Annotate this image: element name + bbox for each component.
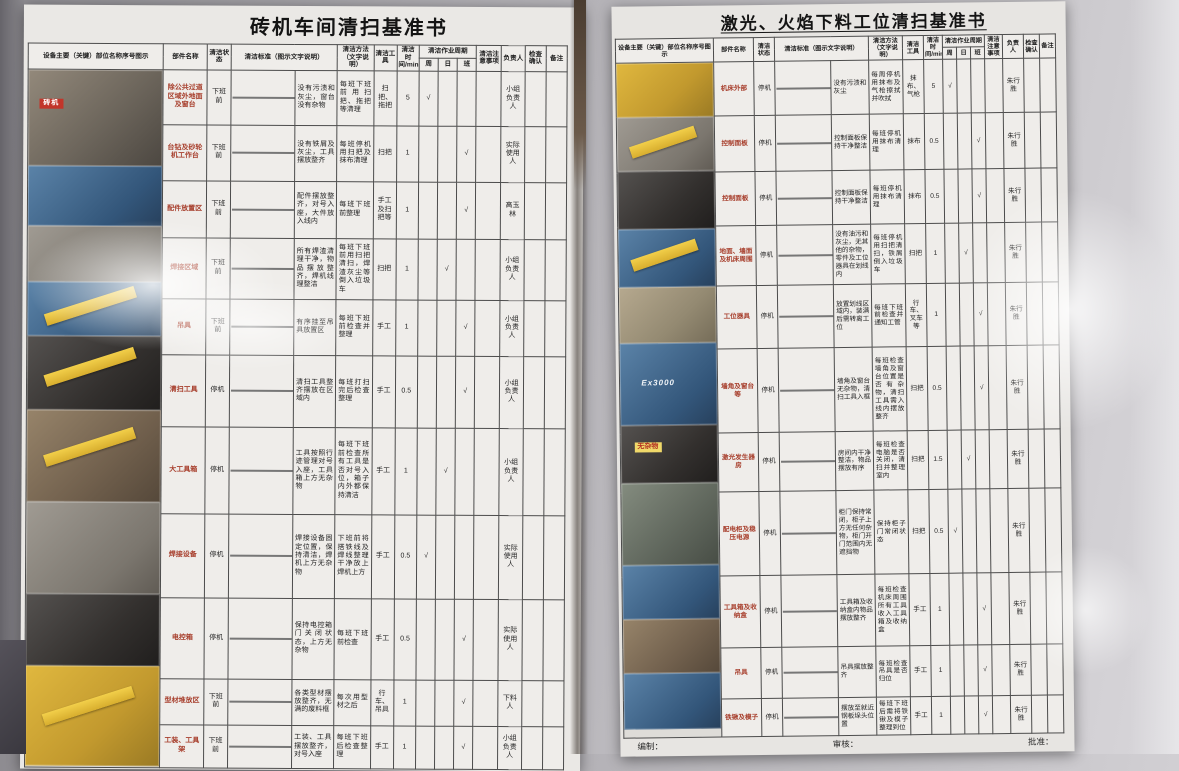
cleaning-state-cell: 停机 <box>205 427 229 514</box>
check-confirm-cell <box>522 599 544 680</box>
header-tool: 清洁工具 <box>902 35 923 60</box>
standard-text-cell: 所有焊渣清理干净，物品摆放整齐，焊机线理整洁 <box>294 238 337 299</box>
header-period-shift: 班 <box>457 58 476 71</box>
period-day-cell <box>960 346 975 430</box>
period-week-cell <box>417 428 437 515</box>
remark-cell <box>543 600 565 681</box>
photographed-desk-scene: 砖机车间清扫基准书 设备主要（关键）部位名称序号图示 部件名称 清洁状态 清洁标… <box>0 0 1179 754</box>
check-confirm-cell <box>522 428 544 515</box>
tool-cell: 抹布 <box>903 114 925 170</box>
note-cell <box>989 430 1008 489</box>
standard-text-cell: 吊具摆放整齐 <box>838 646 877 697</box>
equipment-photo <box>617 171 715 230</box>
note-cell <box>987 223 1006 283</box>
tool-cell: 手工 <box>371 599 395 680</box>
period-day-cell <box>435 515 455 599</box>
period-day-cell <box>437 300 456 356</box>
period-shift-cell: √ <box>978 696 992 734</box>
cleaning-state-cell: 停机 <box>760 576 782 648</box>
remark-cell <box>1045 488 1062 572</box>
responsible-person-cell: 实际使用人 <box>498 599 522 680</box>
cleaning-state-cell: 停机 <box>206 355 230 427</box>
responsible-person-cell: 朱行胜 <box>1005 223 1027 283</box>
cleaning-state-cell: 停机 <box>204 598 228 679</box>
responsible-person-cell: 小组负责人 <box>499 428 523 515</box>
standard-text-cell: 没有铁屑及灰尘，工具摆放整齐 <box>295 125 338 181</box>
responsible-person-cell: 高玉林 <box>501 182 524 239</box>
time-cell: 5 <box>397 71 419 126</box>
standard-photo-cell <box>778 348 835 433</box>
equipment-photo <box>27 335 161 410</box>
remark-cell <box>546 72 567 127</box>
period-week-cell: √ <box>943 59 958 113</box>
time-cell: 0.5 <box>924 114 944 170</box>
note-cell <box>475 239 500 300</box>
standard-text-cell: 工具箱及收纳盒内物品摆放整齐 <box>837 575 876 647</box>
header-state: 清洁状态 <box>753 37 774 62</box>
responsible-person-cell: 朱行胜 <box>1009 573 1031 645</box>
part-name-cell: 机床外部 <box>714 62 755 116</box>
part-name-cell: 控制面板 <box>715 172 756 226</box>
period-week-cell <box>417 356 437 428</box>
note-cell <box>475 300 500 356</box>
period-week-cell <box>949 573 964 645</box>
period-shift-cell <box>975 430 990 489</box>
header-photo-col: 设备主要（关键）部位名称序号图示 <box>28 43 163 69</box>
callout-ribbon <box>44 347 137 387</box>
header-remark: 备注 <box>1039 34 1055 59</box>
standard-text-cell: 控制面板保持干净整洁 <box>832 171 871 225</box>
reviewed-by-label: 审核： <box>833 738 859 750</box>
equipment-photo <box>624 673 722 730</box>
period-week-cell <box>416 599 436 680</box>
time-cell: 1 <box>393 680 415 726</box>
method-cell: 每班检查电脑是否关闭，清扫并整理室内 <box>873 431 908 490</box>
callout-ribbon <box>629 125 697 158</box>
cleaning-standard-table-right: 设备主要（关键）部位名称序号图示 部件名称 清洁状态 清洁标准（图示文字说明） … <box>615 33 1065 739</box>
tool-cell: 扫把 <box>908 490 930 574</box>
check-confirm-cell <box>1024 112 1041 168</box>
standard-photo <box>229 701 292 703</box>
standard-photo-cell <box>229 355 294 427</box>
period-day-cell <box>437 182 456 239</box>
standard-photo <box>779 315 834 318</box>
standard-photo <box>230 555 293 557</box>
standard-text-cell: 控制面板保持干净整洁 <box>831 115 870 171</box>
responsible-person-cell: 朱行胜 <box>1003 59 1025 113</box>
responsible-person-cell: 朱行胜 <box>1003 113 1025 169</box>
note-cell <box>987 283 1006 346</box>
period-week-cell <box>943 113 958 169</box>
note-cell <box>985 113 1004 169</box>
standard-photo-cell <box>780 491 837 576</box>
period-shift-cell <box>457 71 476 126</box>
standard-photo-cell <box>230 125 295 181</box>
standard-photo <box>230 390 293 392</box>
header-method: 清洁方法（文字说明） <box>337 45 373 71</box>
tool-cell: 抹布、气枪 <box>903 60 925 114</box>
responsible-person-cell: 朱行胜 <box>1005 283 1027 346</box>
tool-cell: 手工 <box>372 300 395 356</box>
method-cell: 每班检查墙角及窗台位置是否有杂物，清扫工具需入线内摆放整齐 <box>872 347 907 431</box>
standard-text-cell: 墙角及窗台无杂物，清扫工具入框 <box>834 348 873 432</box>
method-cell: 每班检查吊具是否归位 <box>876 646 911 697</box>
period-shift-cell: √ <box>454 599 474 680</box>
standard-text-cell: 配件摆放整齐，对号入座，大件放入线内 <box>294 181 337 238</box>
check-confirm-cell <box>1031 695 1047 733</box>
cleaning-state-cell: 停机 <box>755 172 777 226</box>
header-state: 清洁状态 <box>207 44 230 70</box>
standard-photo-cell <box>230 181 295 238</box>
check-confirm-cell <box>523 300 544 356</box>
responsible-person-cell: 小组负责人 <box>498 726 521 769</box>
cleaning-state-cell: 停机 <box>757 349 779 433</box>
period-week-cell <box>950 696 964 734</box>
period-shift-cell <box>976 489 991 573</box>
standard-photo-cell <box>228 427 293 514</box>
cleaning-state-cell: 停机 <box>758 433 780 492</box>
time-cell: 1 <box>396 182 418 239</box>
glare-overlay <box>1130 0 1179 754</box>
right-document: 激光、火焰下料工位清扫基准书 设备主要（关键）部位名称序号图示 部件名称 清洁状… <box>611 1 1074 756</box>
cleaning-state-cell: 停机 <box>756 286 778 349</box>
check-confirm-cell <box>1030 572 1047 644</box>
time-cell: 1 <box>395 300 417 356</box>
period-week-cell: √ <box>419 71 438 126</box>
part-name-cell: 台钻及砂轮机工作台 <box>163 125 208 181</box>
method-cell: 每班停机用抹布清理 <box>870 170 905 224</box>
period-week-cell <box>418 239 437 300</box>
check-confirm-cell <box>1027 345 1044 429</box>
time-cell: 1 <box>931 646 951 697</box>
tool-cell: 手工 <box>372 356 396 428</box>
equipment-photo-column: Ex3000无杂物 <box>616 62 722 738</box>
period-day-cell <box>964 696 978 734</box>
cleaning-state-cell: 下班前 <box>206 299 229 355</box>
standard-photo-cell <box>776 171 833 226</box>
part-name-cell: 地面、墙面及机床周围 <box>716 226 757 286</box>
standard-photo-cell <box>781 575 838 648</box>
note-cell <box>475 356 501 428</box>
standard-photo-cell <box>227 679 292 725</box>
standard-photo-cell <box>775 115 832 172</box>
equipment-photo <box>619 287 717 344</box>
corner-shadow <box>0 640 26 754</box>
part-name-cell: 控制面板 <box>714 116 755 172</box>
part-name-cell: 焊接设备 <box>160 513 205 597</box>
standard-text-cell: 房间内干净整洁，物品摆放有序 <box>835 432 874 491</box>
header-part: 部件名称 <box>713 38 753 63</box>
method-cell: 每次用型材之后 <box>334 679 371 725</box>
period-day-cell: √ <box>961 430 976 489</box>
note-cell <box>986 169 1005 223</box>
left-document: 砖机车间清扫基准书 设备主要（关键）部位名称序号图示 部件名称 清洁状态 清洁标… <box>20 5 584 771</box>
equipment-photo <box>25 665 160 766</box>
check-confirm-cell <box>524 239 545 300</box>
responsible-person-cell: 朱行胜 <box>1006 346 1028 430</box>
cleaning-state-cell: 停机 <box>754 116 776 172</box>
standard-photo-cell <box>228 514 293 598</box>
equipment-photo <box>26 593 160 666</box>
standard-photo <box>231 326 294 328</box>
standard-photo <box>783 610 838 613</box>
prepared-by-label: 编制： <box>637 741 663 753</box>
period-week-cell: √ <box>416 515 436 599</box>
standard-photo-cell <box>779 432 836 492</box>
time-cell: 0.5 <box>925 170 945 224</box>
check-confirm-cell <box>525 71 546 126</box>
remark-cell <box>545 240 567 301</box>
period-day-cell <box>435 680 454 726</box>
page-title: 砖机车间清扫基准书 <box>118 10 580 41</box>
method-cell: 每班下班前检查 <box>334 598 371 679</box>
period-day-cell <box>435 726 454 769</box>
standard-text-cell: 保持电控箱门关闭状态，上方无杂物 <box>292 598 335 679</box>
equipment-photo <box>28 225 162 282</box>
tool-cell: 扫把 <box>906 347 928 431</box>
cleaning-state-cell: 下班前 <box>207 181 230 238</box>
tool-cell: 扫把 <box>905 224 927 284</box>
page-title: 激光、火焰下料工位清扫基准书 <box>644 5 1062 35</box>
standard-photo <box>777 142 832 145</box>
period-week-cell <box>945 283 960 346</box>
method-cell: 每班停机用抹布清理 <box>869 114 904 170</box>
period-week-cell <box>944 169 959 223</box>
check-confirm-cell <box>1024 58 1041 112</box>
time-cell: 1 <box>396 239 418 300</box>
note-cell <box>476 71 501 126</box>
part-name-cell: 清扫工具 <box>161 354 206 426</box>
standard-photo <box>232 96 295 98</box>
standard-photo <box>778 197 833 200</box>
header-tool: 清洁工具 <box>374 45 397 71</box>
responsible-person-cell: 朱行胜 <box>1004 169 1026 223</box>
part-name-cell: 除公共过道区域外地面及窗台 <box>163 70 208 125</box>
standard-photo-cell <box>229 299 294 355</box>
tool-cell: 手工 <box>370 726 393 769</box>
machine-model-label: Ex3000 <box>641 378 675 388</box>
standard-photo-cell <box>227 725 292 768</box>
period-shift-cell <box>455 428 475 515</box>
period-shift-cell: √ <box>972 169 987 223</box>
time-cell: 1 <box>926 284 946 347</box>
equipment-photo: 砖机 <box>28 69 163 166</box>
cleaning-state-cell: 下班前 <box>207 70 230 125</box>
equipment-photo <box>28 165 162 226</box>
equipment-photo <box>621 483 719 566</box>
check-confirm-cell <box>1026 222 1043 282</box>
standard-text-cell: 焊接设备固定位置，保持清洁，焊机上方无杂物 <box>292 514 335 598</box>
standard-photo-cell <box>782 698 838 737</box>
cleaning-state-cell: 下班前 <box>204 679 227 725</box>
method-cell: 每班下班后需将铁锹及模子整理到位 <box>876 697 910 735</box>
part-name-cell: 配电柜及稳压电源 <box>719 492 760 576</box>
approved-by-label: 批准： <box>1028 736 1054 748</box>
equipment-photo <box>26 501 160 594</box>
period-week-cell <box>945 223 960 283</box>
method-cell: 每班下班前检查并整理 <box>336 299 373 355</box>
check-confirm-cell <box>523 356 545 428</box>
remark-cell <box>543 680 564 726</box>
table-body: 砖机 除公共过道区域外地面及窗台 下班前 没有污渍和灰尘，窗台没有杂物 每班下班… <box>25 69 568 770</box>
method-cell: 每班下班前用扫把、拖把等清理 <box>337 70 374 125</box>
responsible-person-cell: 下料人 <box>498 680 521 726</box>
equipment-photo <box>616 63 714 118</box>
note-cell <box>992 696 1010 734</box>
period-shift-cell: √ <box>973 283 988 346</box>
period-day-cell <box>964 645 979 696</box>
header-check: 检查确认 <box>525 46 546 72</box>
equipment-photo-stack: Ex3000无杂物 <box>616 63 721 730</box>
remark-cell <box>1046 572 1063 644</box>
header-time: 清洁时间/min <box>397 45 419 71</box>
tool-cell: 扫把 <box>373 126 396 182</box>
header-standard: 清洁标准（图示文字说明） <box>774 36 868 62</box>
part-name-cell: 墙角及窗台等 <box>717 349 758 433</box>
standard-text-cell: 没有污渍和灰尘，窗台没有杂物 <box>295 70 338 125</box>
header-period-day: 日 <box>956 47 970 59</box>
header-period: 清洁作业周期 <box>419 45 476 58</box>
header-period-week: 周 <box>419 58 438 71</box>
standard-photo <box>782 532 837 535</box>
standard-text-cell: 各类型材摆放整齐，无满的废料框 <box>292 679 335 725</box>
note-cell <box>474 515 500 599</box>
note-cell <box>990 489 1009 573</box>
header-person: 负责人 <box>502 46 525 72</box>
header-part: 部件名称 <box>163 44 207 70</box>
tool-cell: 扫把 <box>373 239 396 300</box>
equipment-photo <box>26 409 160 502</box>
cleaning-state-cell: 停机 <box>761 699 782 737</box>
part-name-cell: 焊接区域 <box>162 238 207 299</box>
remark-cell <box>1042 282 1059 345</box>
standard-photo-cell <box>777 285 834 349</box>
responsible-person-cell: 朱行胜 <box>1010 645 1032 696</box>
tool-cell: 抹布 <box>904 170 926 224</box>
method-cell: 每班检查机床周围所有工具收入工具箱及收纳盒 <box>875 574 910 646</box>
cleaning-state-cell: 下班前 <box>204 725 227 768</box>
method-cell: 每班停机用扫把及抹布清理 <box>337 125 374 181</box>
tool-cell: 扫把 <box>907 431 929 490</box>
tool-cell: 行车、叉车等 <box>905 284 927 347</box>
header-period: 清洁作业周期 <box>942 35 984 48</box>
responsible-person-cell: 小组负责人 <box>501 71 524 126</box>
time-cell: 0.5 <box>395 356 418 428</box>
cleaning-state-cell: 停机 <box>759 492 781 576</box>
period-week-cell <box>946 346 961 430</box>
header-photo-col: 设备主要（关键）部位名称序号图示 <box>615 38 713 64</box>
note-cell <box>473 680 498 726</box>
check-confirm-cell <box>1028 429 1045 488</box>
part-name-cell: 工装、工具架 <box>160 724 205 767</box>
part-name-cell: 配件放置区 <box>162 181 207 238</box>
period-day-cell <box>963 573 978 645</box>
note-cell <box>988 346 1007 430</box>
check-confirm-cell <box>1025 168 1042 222</box>
period-day-cell: √ <box>959 223 974 283</box>
check-confirm-cell <box>524 126 545 182</box>
check-confirm-cell <box>524 182 545 239</box>
period-day-cell <box>962 489 977 573</box>
period-shift-cell: √ <box>455 356 475 428</box>
header-remark: 备注 <box>546 46 567 72</box>
remark-cell <box>543 516 565 600</box>
period-week-cell <box>418 126 437 182</box>
period-shift-cell <box>456 239 475 300</box>
check-confirm-cell <box>1026 282 1043 345</box>
time-cell: 0.5 <box>394 515 417 599</box>
part-name-cell: 激光发生器房 <box>718 433 759 492</box>
responsible-person-cell: 小组负责人 <box>500 300 523 356</box>
tool-cell: 手工 <box>371 428 395 515</box>
check-confirm-cell <box>521 726 542 769</box>
responsible-person-cell: 小组负责人 <box>500 356 524 428</box>
table-row: 砖机 除公共过道区域外地面及窗台 下班前 没有污渍和灰尘，窗台没有杂物 每班下班… <box>28 69 567 127</box>
part-name-cell: 工具箱及收纳盒 <box>720 576 761 648</box>
responsible-person-cell: 小组负责人 <box>500 239 523 300</box>
period-day-cell <box>436 356 456 428</box>
standard-photo-cell <box>777 225 834 286</box>
standard-photo-cell <box>775 61 832 116</box>
standard-text-cell: 清扫工具整齐摆放在区域内 <box>293 355 336 427</box>
part-name-cell: 吊具 <box>721 648 762 699</box>
table-row: Ex3000无杂物 机床外部 停机 没有污渍和灰尘 每周停机用抹布及气枪擦拭并吹… <box>616 58 1057 117</box>
tool-cell: 手工及扫把等 <box>373 182 396 239</box>
standard-photo <box>780 389 835 392</box>
period-shift-cell: √ <box>454 680 473 726</box>
period-shift-cell: √ <box>974 346 989 430</box>
standard-photo <box>229 745 292 747</box>
standard-photo <box>232 152 295 154</box>
method-cell: 每班下班前检查所有工具是否对号入位，箱子内外都保持清洁 <box>335 427 372 514</box>
period-day-cell <box>959 283 974 346</box>
standard-photo <box>784 671 839 674</box>
part-name-cell: 吊具 <box>162 298 207 354</box>
remark-cell <box>544 429 566 516</box>
header-period-week: 周 <box>942 47 956 59</box>
time-cell: 1 <box>396 126 418 182</box>
part-name-cell: 工位器具 <box>716 286 757 349</box>
standard-text-cell: 工装、工具摆放整齐，对号入座 <box>291 725 334 768</box>
period-week-cell: √ <box>948 489 963 573</box>
header-period-shift: 班 <box>970 47 984 59</box>
photo-tag-label: 砖机 <box>39 98 63 109</box>
period-day-cell <box>438 71 457 126</box>
time-cell: 1 <box>395 428 418 515</box>
check-confirm-cell <box>521 680 542 726</box>
standard-text-cell: 放置划线区域内，装满后需转离工位 <box>833 285 872 348</box>
method-cell: 每班下班后检查整理 <box>334 725 370 768</box>
part-name-cell: 铁锹及模子 <box>721 699 761 737</box>
period-shift-cell: √ <box>457 126 476 182</box>
photo-tag-label: 无杂物 <box>634 442 661 453</box>
standard-photo <box>229 637 292 639</box>
period-day-cell <box>958 169 973 223</box>
time-cell: 0.5 <box>929 490 949 574</box>
callout-ribbon <box>42 686 135 726</box>
method-cell: 每班下班前用扫把清扫，焊渣灰尘等倒入垃圾车 <box>336 238 373 299</box>
standard-photo-cell <box>782 647 839 699</box>
period-day-cell <box>438 126 457 182</box>
standard-photo-cell <box>227 598 292 679</box>
period-day-cell: √ <box>436 428 456 515</box>
note-cell <box>992 645 1011 696</box>
remark-cell <box>545 183 567 240</box>
period-shift-cell <box>455 515 475 599</box>
note-cell <box>991 573 1010 645</box>
check-confirm-cell <box>1031 644 1048 695</box>
period-shift-cell: √ <box>978 645 993 696</box>
